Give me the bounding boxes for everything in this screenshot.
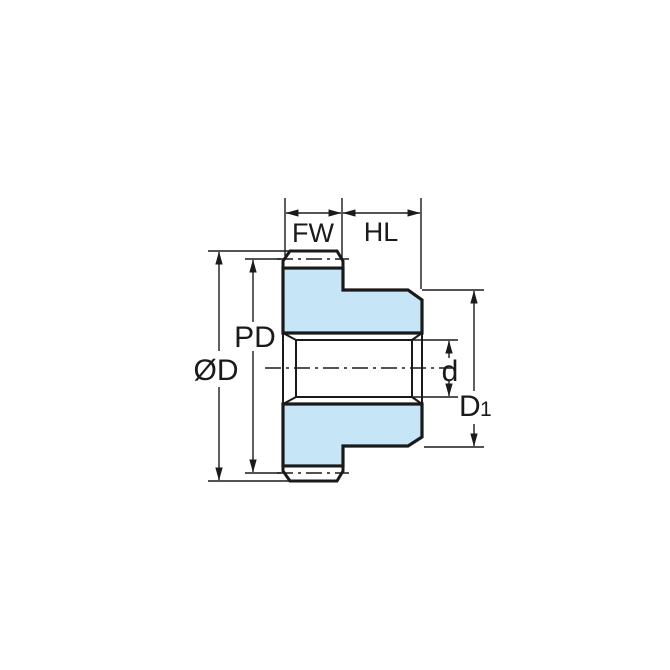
- fw-label: FW: [292, 218, 334, 248]
- d1-label: D: [459, 390, 481, 423]
- gear-technical-drawing: FW HL ØD PD d: [0, 0, 670, 670]
- dimension-od: ØD: [194, 251, 293, 481]
- gear-body-lower-section: [283, 404, 422, 466]
- gear-section: [283, 268, 422, 466]
- d1-label-subscript: 1: [480, 398, 492, 421]
- gear-body-upper-section: [283, 268, 422, 333]
- pd-label: PD: [234, 321, 276, 354]
- od-label: ØD: [194, 354, 239, 387]
- dimension-hl: HL: [343, 198, 421, 289]
- dimension-pd: PD: [234, 259, 281, 473]
- hl-label: HL: [364, 217, 399, 247]
- d-label: d: [442, 355, 459, 388]
- drawing-canvas: FW HL ØD PD d: [0, 0, 670, 670]
